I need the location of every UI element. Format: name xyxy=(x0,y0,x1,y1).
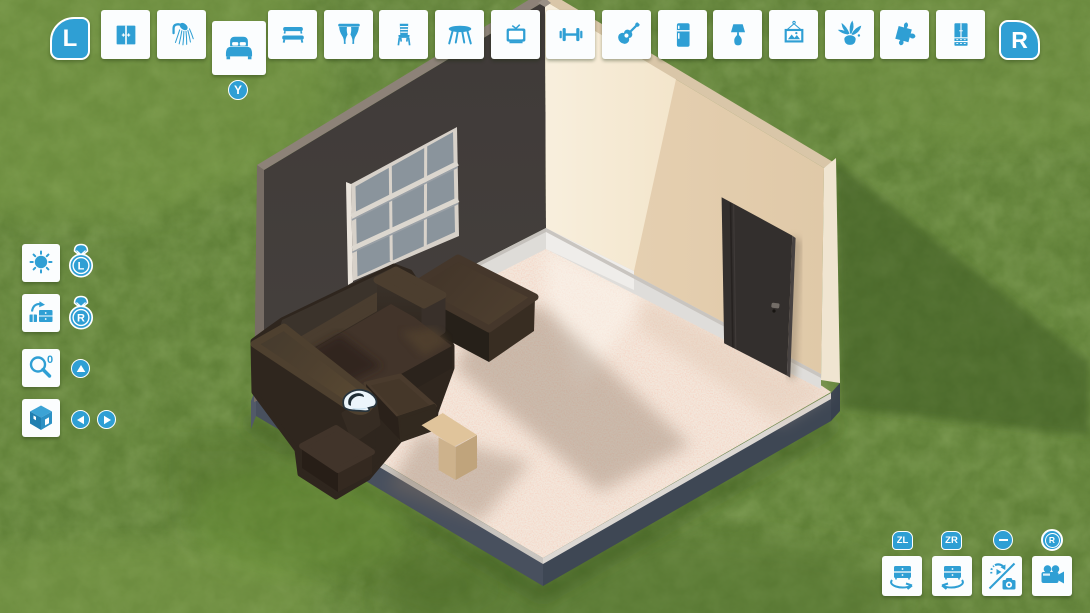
svg-text:0: 0 xyxy=(47,354,53,366)
svg-text:L: L xyxy=(78,261,85,273)
svg-text:R: R xyxy=(77,313,85,325)
